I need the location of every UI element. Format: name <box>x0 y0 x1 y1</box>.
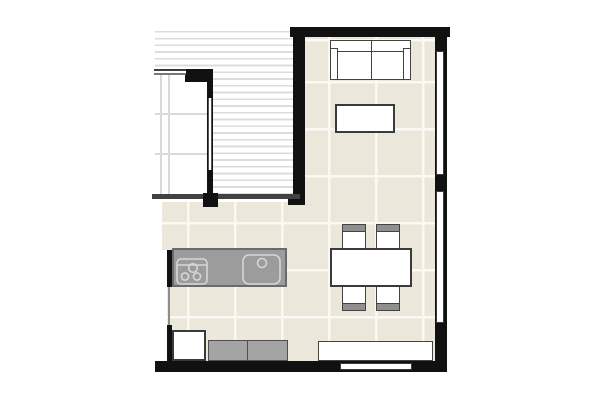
glass-door-terrace <box>152 194 300 199</box>
dining-table <box>330 248 412 287</box>
sofa-seat-right <box>371 51 404 80</box>
window-adjacent-room <box>208 98 212 170</box>
adjacent-room-window-top <box>154 69 186 75</box>
room-grid-line <box>155 153 207 155</box>
coffee-table <box>335 104 395 133</box>
kitchen-wall-opening <box>168 287 170 325</box>
sideboard <box>318 341 433 361</box>
window-right-upper <box>436 51 444 175</box>
chair-backrest <box>377 303 399 310</box>
counter-appliances <box>174 250 285 285</box>
floor-mask <box>150 250 167 361</box>
base-cabinet <box>247 340 288 361</box>
adjacent-room <box>155 75 207 197</box>
dining-chair <box>376 224 400 251</box>
dining-chair <box>376 284 400 311</box>
window-right-lower <box>436 191 444 323</box>
faucet <box>258 259 267 268</box>
wall-terrace-living <box>293 27 305 205</box>
chair-backrest <box>377 225 399 232</box>
sofa-armrest-right <box>403 48 411 80</box>
sofa-seat-left <box>337 51 372 80</box>
chair-backrest <box>343 225 365 232</box>
sofa <box>330 40 411 80</box>
wall-top <box>290 27 450 37</box>
floor-plan <box>0 0 600 400</box>
room-grid-line <box>155 113 207 115</box>
kitchen-appliance <box>172 330 206 361</box>
dining-chair <box>342 224 366 251</box>
chair-backrest <box>343 303 365 310</box>
burner <box>193 273 200 280</box>
burner <box>181 273 188 280</box>
room-grid-line <box>160 75 162 197</box>
window-bottom <box>340 363 412 370</box>
room-grid-line <box>168 75 170 197</box>
base-cabinet <box>208 340 248 361</box>
adjacent-room-wall-top <box>185 69 213 82</box>
dining-chair <box>342 284 366 311</box>
sink <box>243 255 280 284</box>
wall-junction-post <box>203 193 218 207</box>
kitchen-counter <box>172 248 287 287</box>
